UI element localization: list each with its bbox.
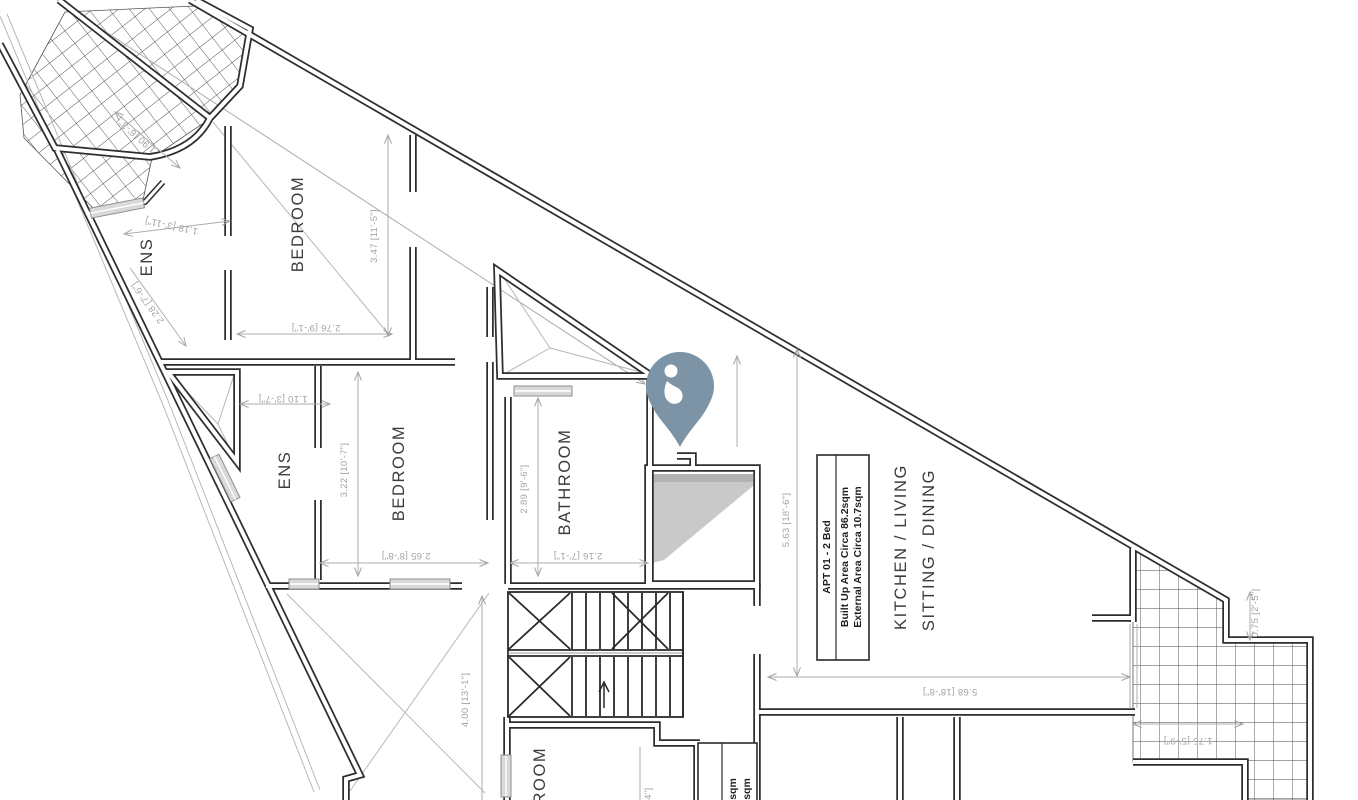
apartment2-area-fragment: sqm [727, 778, 739, 800]
dimension-label: 1.92 [6'-4"] [643, 788, 654, 800]
apartment2-area-fragment: sqm [741, 778, 753, 800]
apartment2-label-box: sqm sqm [698, 743, 757, 800]
room-label-bathroom: BATHROOM [556, 429, 574, 536]
dimension-label: 0.75 [2'-5"] [1250, 589, 1261, 638]
room-label-ens2: ENS [276, 451, 294, 490]
room-label-bedroom3: BEDROOM [531, 747, 549, 800]
apartment-external-area: External Area Circa 10.7sqm [852, 486, 864, 627]
apartment-label-box: APT 01 - 2 Bed Built Up Area Circa 86.2s… [817, 455, 869, 660]
room-label-sitting-dining: SITTING / DINING [920, 469, 938, 631]
dimension-label: 3.22 [10'-7"] [339, 443, 350, 498]
room-label-bedroom2: BEDROOM [390, 425, 408, 521]
dimension-label: 3.47 [11'-5"] [369, 209, 380, 263]
dimension-label: 2.16 [7'-1"] [554, 550, 603, 561]
dimension-label: 2.89 [9'-6"] [519, 465, 530, 514]
floor-plan: 1.90 [6'-3"] 1.18 [3'-11"] 2.28 [7'-6"] … [0, 0, 1358, 800]
apartment-built-area: Built Up Area Circa 86.2sqm [839, 487, 851, 627]
room-label-kitchen-living: KITCHEN / LIVING [892, 464, 910, 630]
dimension-label: 5.68 [18'-8"] [923, 686, 978, 697]
dimension-label: 4.00 [13'-1"] [460, 673, 471, 728]
apartment-title: APT 01 - 2 Bed [821, 520, 833, 594]
room-label-ens1: ENS [138, 238, 156, 277]
dimension-label: 2.65 [8'-8"] [382, 550, 431, 561]
room-label-bedroom1: BEDROOM [289, 176, 307, 272]
dimension-label: 1.75 [5'-9"] [1164, 735, 1213, 746]
dimension-label: 2.76 [9'-1"] [292, 322, 341, 333]
dimension-label: 5.63 [18'-6"] [781, 493, 792, 548]
dimension-label: 1.10 [3'-7"] [259, 393, 308, 404]
